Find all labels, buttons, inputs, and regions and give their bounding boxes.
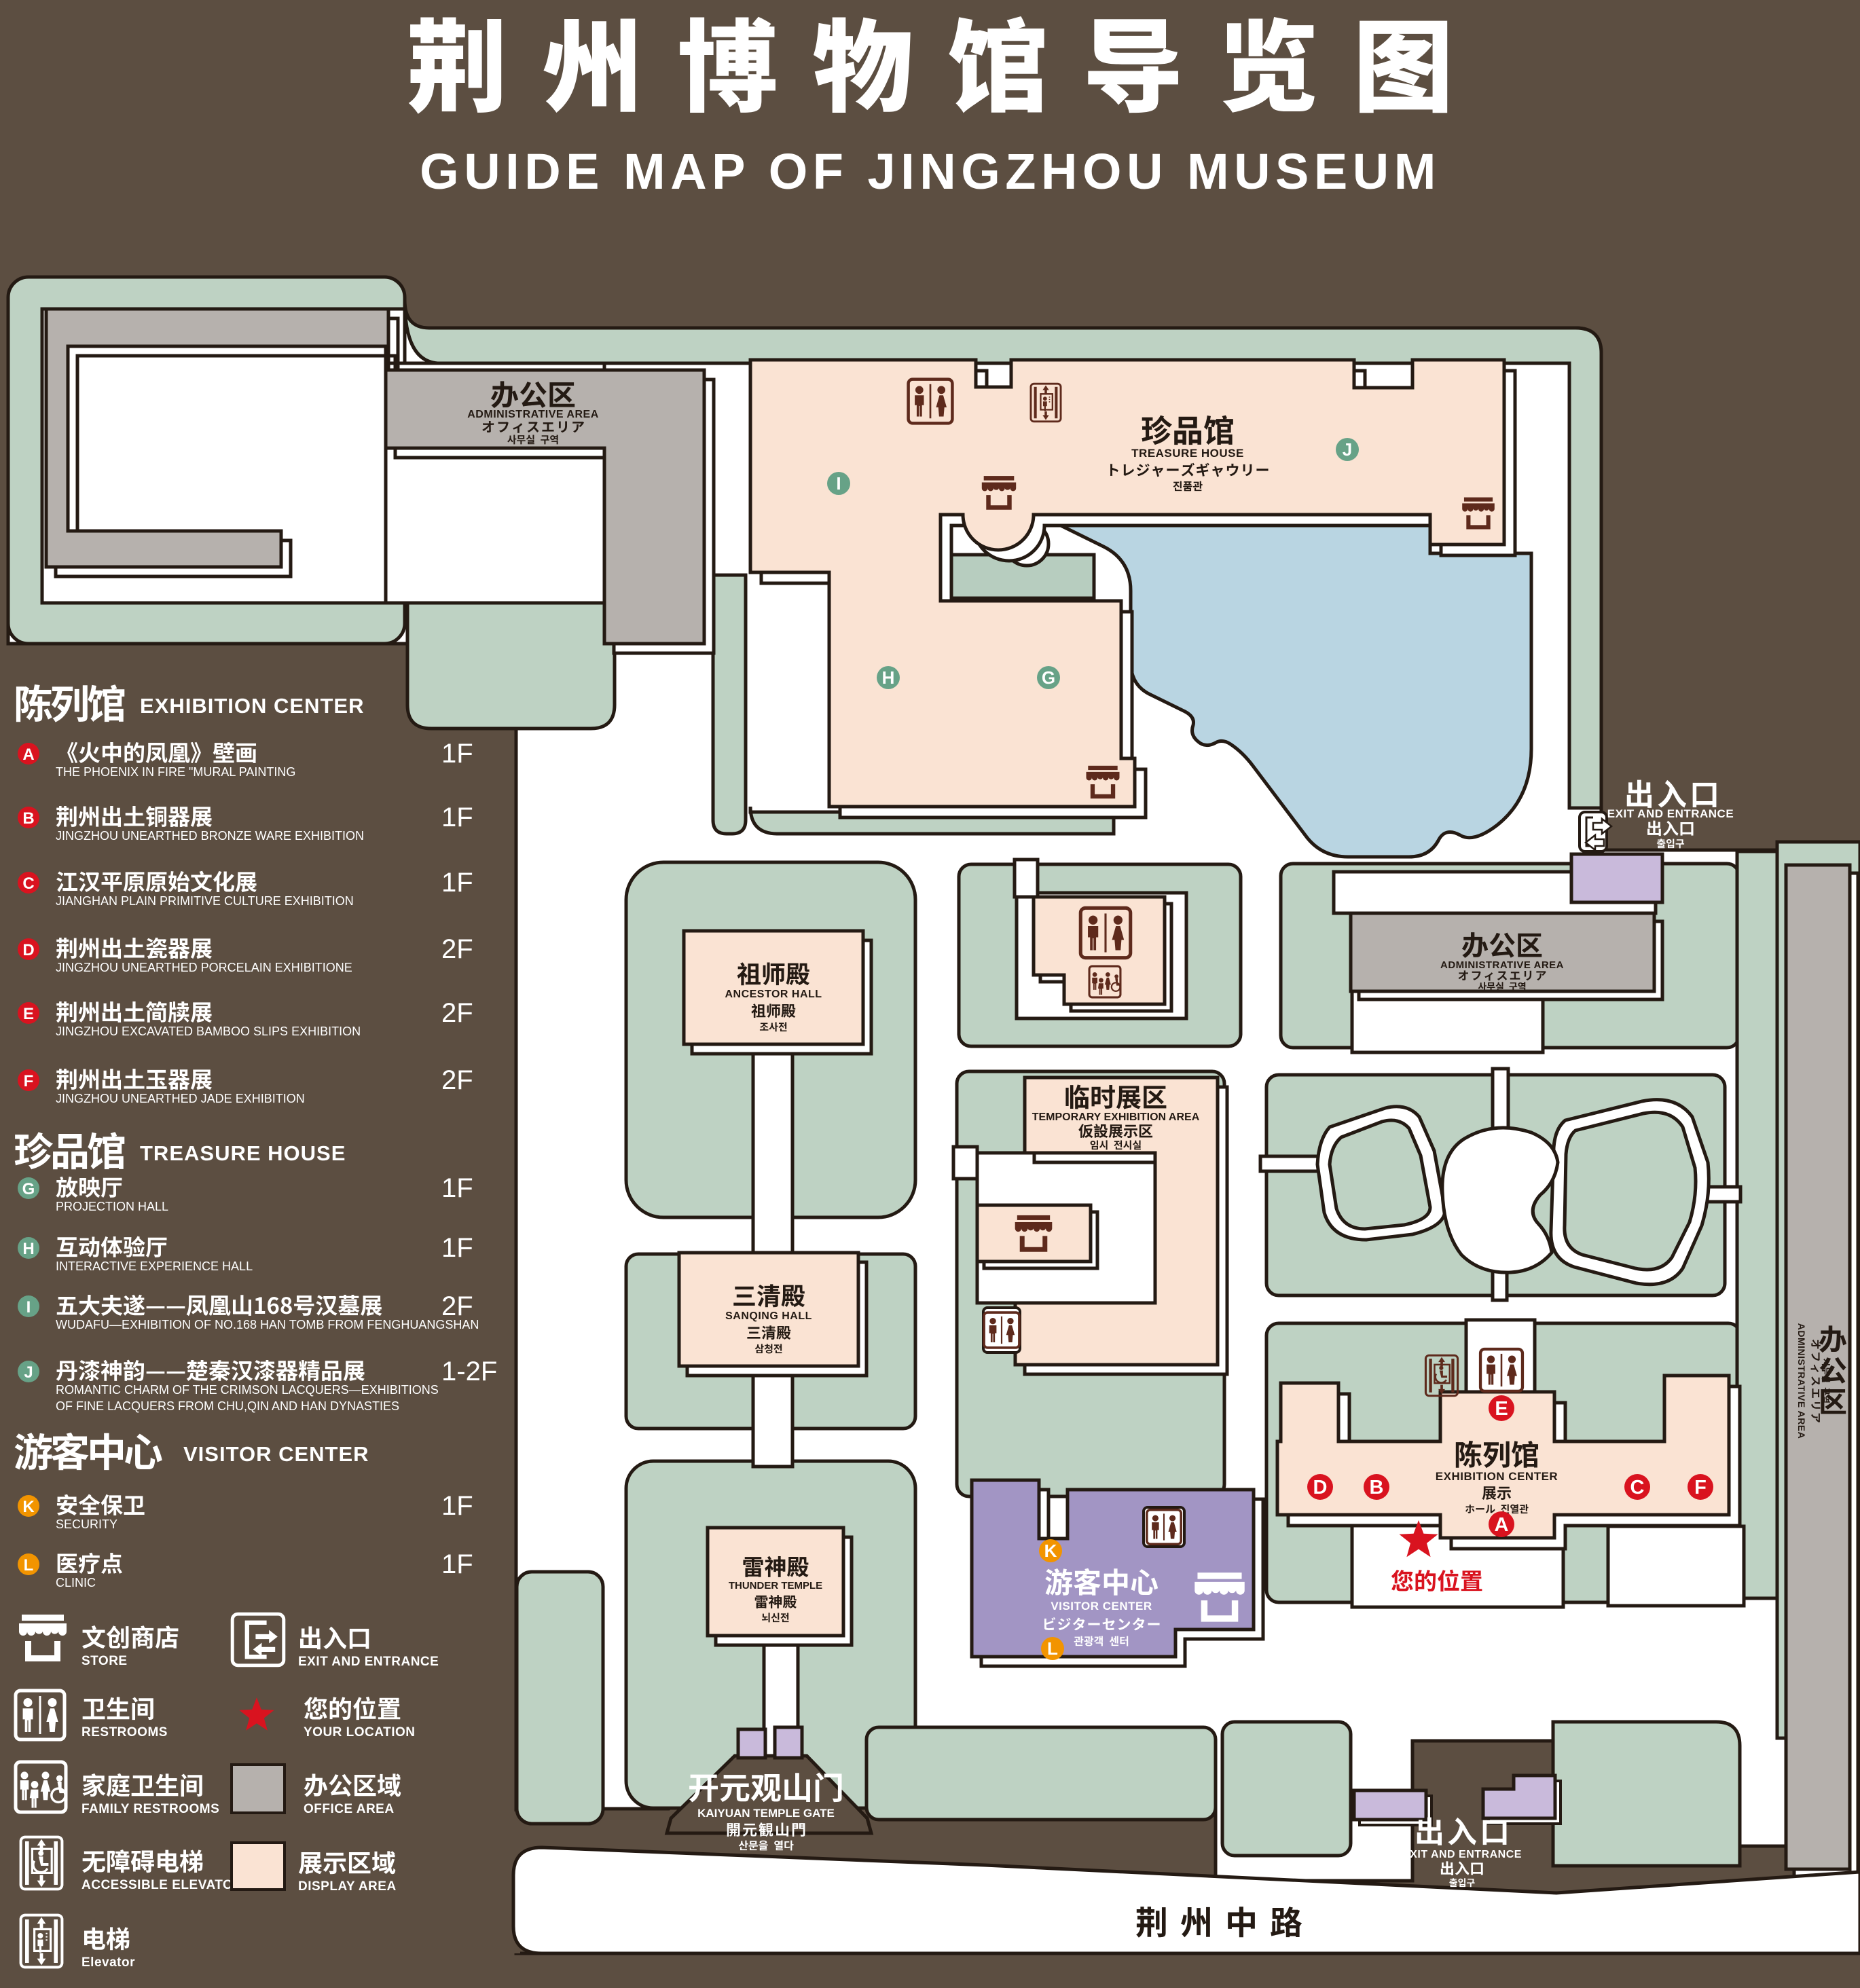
svg-text:E: E [23,1005,34,1023]
svg-text:INTERACTIVE EXPERIENCE HALL: INTERACTIVE EXPERIENCE HALL [56,1259,253,1273]
svg-text:D: D [1313,1477,1328,1498]
svg-text:GUIDE MAP OF JINGZHOU MUSEUM: GUIDE MAP OF JINGZHOU MUSEUM [420,143,1441,200]
svg-text:TREASURE HOUSE: TREASURE HOUSE [1131,447,1244,460]
svg-text:1F: 1F [441,803,473,832]
svg-text:2F: 2F [441,998,473,1028]
svg-text:1F: 1F [441,1173,473,1203]
svg-text:L: L [24,1556,34,1575]
svg-text:ACCESSIBLE ELEVATOR: ACCESSIBLE ELEVATOR [81,1878,243,1892]
svg-text:J: J [24,1363,33,1382]
svg-text:L: L [1047,1638,1058,1659]
svg-text:1F: 1F [441,1233,473,1263]
svg-text:DISPLAY AREA: DISPLAY AREA [298,1879,397,1894]
svg-text:D: D [22,941,34,959]
svg-text:SECURITY: SECURITY [56,1517,117,1531]
svg-text:ADMINISTRATIVE AREA: ADMINISTRATIVE AREA [1440,959,1564,971]
svg-text:A: A [22,745,34,764]
svg-text:1F: 1F [441,739,473,769]
svg-text:FAMILY RESTROOMS: FAMILY RESTROOMS [81,1802,219,1816]
svg-text:I: I [26,1298,31,1317]
svg-text:B: B [1370,1477,1384,1498]
svg-text:OFFICE AREA: OFFICE AREA [304,1802,395,1816]
svg-text:PROJECTION HALL: PROJECTION HALL [56,1200,168,1213]
svg-text:VISITOR CENTER: VISITOR CENTER [183,1442,369,1466]
svg-text:2F: 2F [441,1291,473,1321]
svg-text:OF FINE LACQUERS FROM CHU,QIN: OF FINE LACQUERS FROM CHU,QIN AND HAN DY… [56,1399,399,1413]
svg-text:JINGZHOU EXCAVATED BAMBOO SLIP: JINGZHOU EXCAVATED BAMBOO SLIPS EXHIBITI… [56,1025,361,1038]
svg-text:2F: 2F [441,1065,473,1095]
svg-text:EXHIBITION CENTER: EXHIBITION CENTER [140,694,364,718]
svg-text:VISITOR CENTER: VISITOR CENTER [1051,1600,1152,1613]
svg-text:TEMPORARY EXHIBITION AREA: TEMPORARY EXHIBITION AREA [1032,1111,1200,1123]
svg-text:K: K [1044,1541,1057,1561]
svg-text:STORE: STORE [81,1654,128,1668]
svg-text:G: G [1042,667,1055,688]
svg-text:1F: 1F [441,868,473,898]
svg-text:H: H [882,667,895,688]
svg-text:ADMINISTRATIVE AREA: ADMINISTRATIVE AREA [1796,1323,1807,1439]
svg-text:G: G [22,1180,35,1198]
svg-text:EXIT AND ENTRANCE: EXIT AND ENTRANCE [1607,807,1734,820]
svg-text:EXIT AND ENTRANCE: EXIT AND ENTRANCE [298,1655,439,1669]
svg-text:CLINIC: CLINIC [56,1576,96,1589]
svg-text:1F: 1F [441,1549,473,1579]
svg-text:WUDAFU—EXHIBITION OF NO.168 HA: WUDAFU—EXHIBITION OF NO.168 HAN TOMB FRO… [56,1318,479,1331]
svg-text:2F: 2F [441,934,473,964]
svg-text:ADMINISTRATIVE AREA: ADMINISTRATIVE AREA [467,409,599,420]
svg-text:1F: 1F [441,1491,473,1521]
svg-text:JINGZHOU UNEARTHED BRONZE WARE: JINGZHOU UNEARTHED BRONZE WARE EXHIBITIO… [56,829,364,843]
svg-text:JINGZHOU UNEARTHED JADE EXHIBI: JINGZHOU UNEARTHED JADE EXHIBITION [56,1092,305,1105]
svg-text:Elevator: Elevator [81,1955,135,1970]
svg-text:F: F [24,1072,34,1090]
svg-text:RESTROOMS: RESTROOMS [81,1725,168,1739]
svg-text:B: B [22,809,34,828]
svg-text:H: H [22,1240,34,1258]
svg-text:TREASURE HOUSE: TREASURE HOUSE [140,1141,346,1165]
svg-text:YOUR LOCATION: YOUR LOCATION [304,1725,415,1739]
svg-text:KAIYUAN TEMPLE GATE: KAIYUAN TEMPLE GATE [697,1807,835,1820]
svg-text:ROMANTIC CHARM OF THE CRIMSON: ROMANTIC CHARM OF THE CRIMSON LACQUERS—E… [56,1383,439,1397]
svg-text:1-2F: 1-2F [441,1357,497,1386]
svg-text:THUNDER TEMPLE: THUNDER TEMPLE [729,1580,822,1591]
svg-text:C: C [1630,1477,1645,1498]
svg-text:J: J [1343,439,1352,460]
svg-text:SANQING HALL: SANQING HALL [725,1310,812,1322]
svg-text:K: K [22,1498,35,1516]
svg-text:ANCESTOR HALL: ANCESTOR HALL [725,989,822,1000]
svg-text:F: F [1694,1477,1707,1498]
svg-text:E: E [1495,1398,1508,1420]
svg-text:EXHIBITION CENTER: EXHIBITION CENTER [1436,1470,1558,1483]
svg-text:JIANGHAN PLAIN PRIMITIVE CULTU: JIANGHAN PLAIN PRIMITIVE CULTURE EXHIBIT… [56,894,354,908]
svg-text:A: A [1495,1514,1509,1536]
svg-text:JINGZHOU UNEARTHED PORCELAIN E: JINGZHOU UNEARTHED PORCELAIN EXHIBITIONE [56,961,352,974]
svg-text:I: I [836,473,841,494]
svg-text:EXIT AND ENTRANCE: EXIT AND ENTRANCE [1402,1849,1522,1860]
svg-text:THE PHOENIX IN FIRE "MURAL PAI: THE PHOENIX IN FIRE "MURAL PAINTING [56,765,295,779]
svg-text:C: C [22,875,34,893]
